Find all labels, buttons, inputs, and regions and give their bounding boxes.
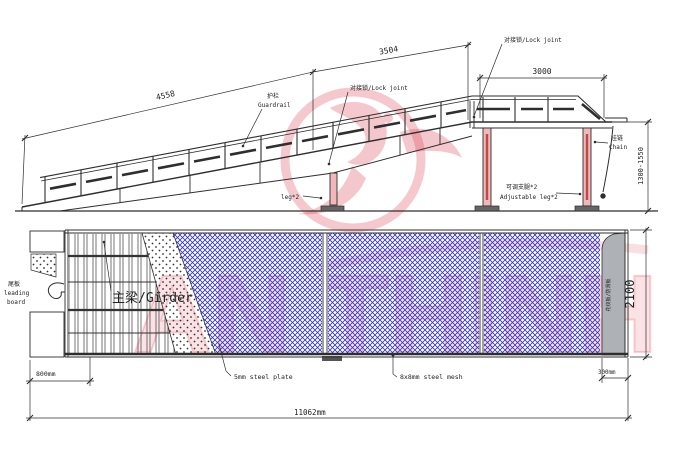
watermark-phoenix-icon bbox=[298, 102, 462, 214]
technical-drawing-page: AN THINH bbox=[0, 0, 680, 454]
lock-joint-lines bbox=[470, 101, 474, 128]
plan-joint-1 bbox=[322, 233, 328, 355]
ext-lines-slope bbox=[22, 42, 468, 204]
guardrail-label: 护栏 Guardrail bbox=[242, 92, 291, 147]
steel-mesh-text: 8x8mm steel mesh bbox=[400, 373, 463, 381]
girder-label-text: 主梁/Girder bbox=[112, 291, 193, 306]
lock-joint-top-text: 对接锁/Lock joint bbox=[504, 36, 562, 44]
chain-label: 挂链 Chain bbox=[594, 134, 628, 151]
dim-11062-label: 11062mm bbox=[294, 408, 326, 417]
dim-3000-label: 3000 bbox=[532, 67, 551, 76]
steel-mesh-region bbox=[173, 233, 600, 355]
adjustable-leg-1 bbox=[475, 128, 499, 211]
lock-joint-mid-text: 对接锁/Lock joint bbox=[350, 84, 408, 92]
plan-joint-2 bbox=[479, 233, 484, 355]
dim-3504-label: 3504 bbox=[378, 44, 399, 56]
adjustable-leg-zh: 可调支腿*2 bbox=[506, 183, 538, 191]
tail-label-en1: leading bbox=[4, 290, 30, 297]
dim-800-label: 800mm bbox=[36, 370, 56, 378]
leg2-text: leg*2 bbox=[281, 194, 299, 201]
guardrail-label-en: Guardrail bbox=[258, 102, 291, 109]
guardrail-label-zh: 护栏 bbox=[267, 92, 279, 100]
dim-2100-label: 2100 bbox=[623, 280, 637, 309]
chain-label-zh: 挂链 bbox=[611, 134, 623, 142]
dim-4558-label: 4558 bbox=[155, 89, 176, 102]
tail-label-en2: board bbox=[7, 299, 25, 306]
adjustable-leg-en: Adjustable leg*2 bbox=[500, 194, 558, 201]
chain-label-en: Chain bbox=[609, 144, 627, 151]
lock-joint-top-label: 对接锁/Lock joint bbox=[473, 36, 562, 118]
guardrail-posts bbox=[45, 97, 548, 203]
elevation-view bbox=[15, 96, 658, 211]
tail-board bbox=[30, 231, 65, 357]
ramp-technical-drawing: AN THINH bbox=[0, 0, 680, 454]
dim-300-label: 300mm bbox=[598, 370, 616, 376]
guardrail-panels bbox=[50, 104, 600, 189]
adjustable-leg-2 bbox=[575, 128, 599, 211]
tow-hook-icon bbox=[48, 283, 65, 299]
adjustable-leg-label: 可调支腿*2 Adjustable leg*2 bbox=[500, 183, 581, 201]
steel-plate-text: 5mm steel plate bbox=[234, 373, 293, 381]
dim-height-label: 1300-1550 bbox=[637, 147, 645, 185]
lip-plate-label: 花纹板/防滑板 bbox=[605, 278, 612, 311]
tail-label-zh: 尾板 bbox=[8, 280, 20, 288]
